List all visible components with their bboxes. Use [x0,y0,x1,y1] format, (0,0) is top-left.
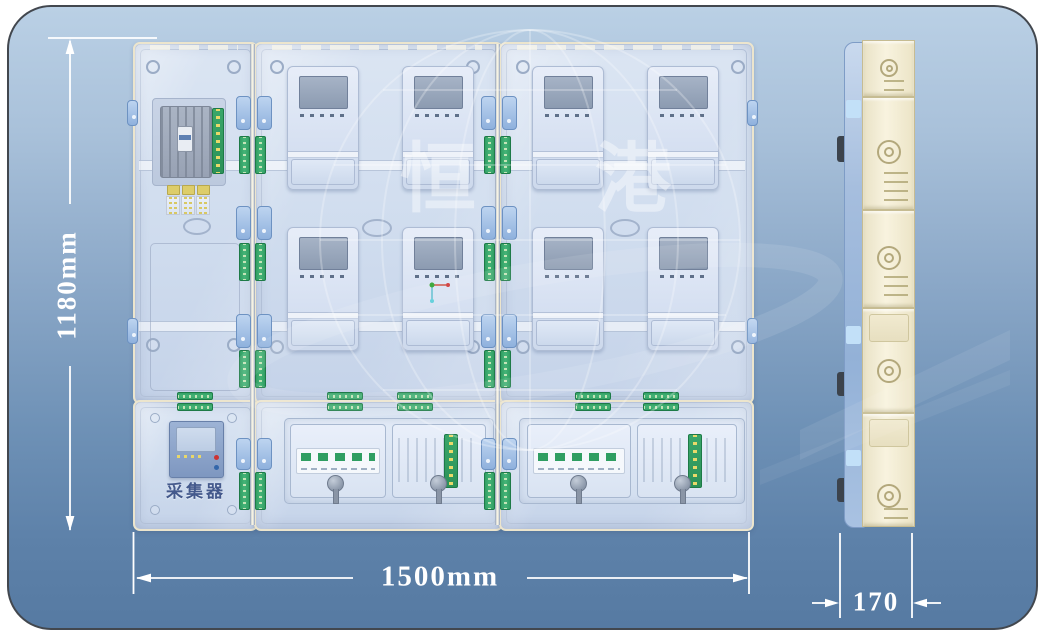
edge-latch [127,318,138,344]
side-recess [869,314,909,342]
vent-slots [150,45,238,50]
red-indicator [214,455,219,460]
meter-step [533,312,603,319]
fuse-pins [181,196,195,215]
green-terminal-block [177,392,213,400]
door-latch [481,96,496,130]
meter-flap [651,159,715,185]
door-latch [257,438,272,470]
screw-detail [270,340,284,354]
screw-detail [516,340,530,354]
sealing-knob [327,475,344,492]
door-latch [257,206,272,240]
meter-step [648,312,718,319]
meter-flap [536,159,600,185]
screw-detail [270,60,284,74]
knockout-oval [362,219,392,237]
green-terminal-block [500,243,511,281]
meter-display [659,76,708,109]
meter-indicator-dots [300,114,345,117]
green-terminal-block [500,136,511,174]
green-terminal-block [255,350,266,388]
green-terminal-block [484,350,495,388]
green-terminal-block [177,403,213,411]
drawing-canvas: 采集器 [0,0,1042,632]
door-latch [236,206,251,240]
width-dimension-label: 1500mm [381,561,499,594]
green-terminal-block [239,350,250,388]
green-terminal-block [643,403,679,411]
terminal-line [301,468,375,470]
fuse-pins [196,196,210,215]
door-latch [257,96,272,130]
screw-detail [227,505,237,515]
fuse-block [182,185,195,195]
empty-bay-outline [150,243,240,391]
side-knockout-circle [877,140,901,164]
door-latch [481,438,496,470]
fuse-pins [166,196,180,215]
sealing-knob [570,475,587,492]
terminal-strip [533,448,625,474]
meter-flap [406,320,470,346]
terminal-line [538,468,620,470]
door-latch [236,314,251,348]
meter-window [287,66,359,190]
screw-detail [150,413,160,423]
collector-leds [177,455,205,458]
side-rib-lines [884,80,904,92]
green-terminal-block [484,243,495,281]
vent-slots [517,45,733,50]
meter-display [299,76,348,109]
fuse-block [167,185,180,195]
screw-detail [731,340,745,354]
collector-label: 采集器 [148,477,244,502]
meter-step [648,151,718,158]
meter-step [288,312,358,319]
green-terminal-block [397,403,433,411]
green-terminal-block [239,243,250,281]
meter-indicator-dots [660,275,705,278]
side-latch-patch [846,450,861,466]
terminal-strip [296,448,380,474]
green-terminal-block [255,472,266,510]
screw-detail [227,413,237,423]
door-latch [236,96,251,130]
screw-detail [146,60,160,74]
meter-display [659,237,708,270]
meter-indicator-dots [415,114,460,117]
meter-indicator-dots [660,114,705,117]
side-latch-patch [846,326,861,344]
meter-flap [651,320,715,346]
meter-window [647,227,719,351]
screw-detail [150,505,160,515]
screw-detail [731,60,745,74]
side-rib-lines [884,276,908,302]
meter-step [403,151,473,158]
door-latch [481,314,496,348]
meter-display [299,237,348,270]
edge-latch [127,100,138,126]
green-terminal-block [255,243,266,281]
meter-window [532,227,604,351]
meter-window [402,66,474,190]
meter-indicator-dots [300,275,345,278]
green-terminal-block [484,136,495,174]
meter-flap [536,320,600,346]
green-terminal-block [327,403,363,411]
sealing-knob [430,475,447,492]
meter-flap [406,159,470,185]
door-latch [257,314,272,348]
meter-indicator-dots [545,114,590,117]
side-latch-patch [846,100,861,118]
green-terminal-block [500,350,511,388]
green-terminal-block [327,392,363,400]
meter-display [414,76,463,109]
meter-flap [291,320,355,346]
door-latch [502,314,517,348]
meter-step [403,312,473,319]
meter-flap [291,159,355,185]
meter-window [532,66,604,190]
side-rib-lines [884,172,908,202]
screw-detail [227,60,241,74]
meter-window [402,227,474,351]
green-terminal-block [255,136,266,174]
meter-indicator-dots [415,275,460,278]
side-knockout-circle [877,484,901,508]
door-latch [502,96,517,130]
depth-dimension-label: 170 [853,587,900,618]
green-terminals [301,453,375,461]
meter-display [414,237,463,270]
green-terminals [538,453,620,461]
meter-step [288,151,358,158]
green-terminal-block [239,136,250,174]
side-recess [869,419,909,447]
green-terminal-block [397,392,433,400]
vent-slots [272,45,482,50]
collector-screen [176,427,216,452]
blue-indicator [214,465,219,470]
green-terminal-block [643,392,679,400]
meter-window [287,227,359,351]
green-terminal-block [500,472,511,510]
fuse-block [197,185,210,195]
meter-display [544,237,593,270]
door-latch [502,206,517,240]
green-terminal-block [484,472,495,510]
side-knockout-circle [877,246,901,270]
side-knockout-circle [877,359,901,383]
meter-display [544,76,593,109]
breaker-toggle [177,126,193,152]
meter-step [533,151,603,158]
knockout-oval [183,218,211,235]
side-rib-lines [884,508,908,522]
green-terminal-block [575,403,611,411]
screw-detail [516,60,530,74]
green-terminal-block [575,392,611,400]
meter-window [647,66,719,190]
sealing-knob [674,475,691,492]
knockout-oval [610,219,640,237]
height-dimension-label: 1180mm [52,230,83,340]
edge-latch [747,100,758,126]
side-knockout-circle [880,59,898,77]
meter-indicator-dots [545,275,590,278]
edge-latch [747,318,758,344]
terminal-board [212,108,224,174]
door-latch [236,438,251,470]
door-latch [481,206,496,240]
door-latch [502,438,517,470]
